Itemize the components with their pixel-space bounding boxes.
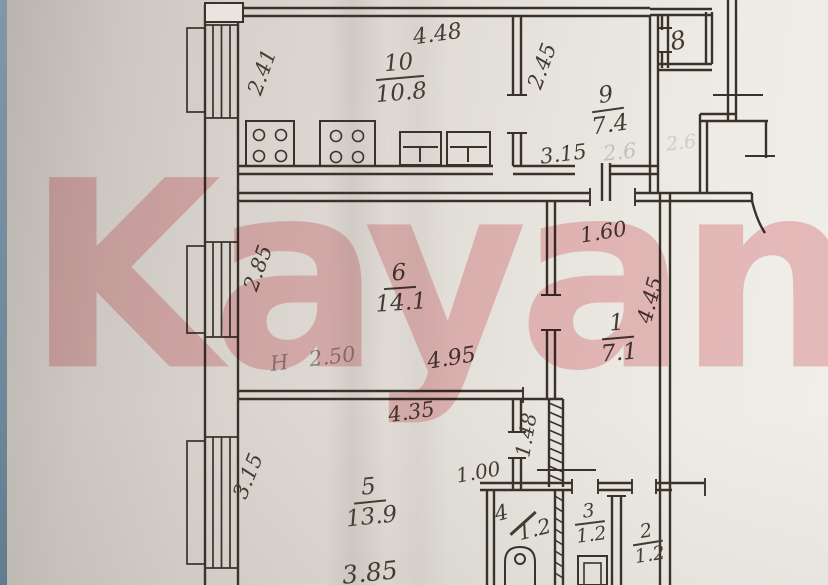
room-number: 6 xyxy=(382,260,416,290)
wall-junction-box xyxy=(205,3,243,22)
room-number: 5 xyxy=(351,473,386,504)
room-number: 9 xyxy=(588,81,624,113)
window-room6 xyxy=(187,242,238,337)
wall-hook xyxy=(752,193,765,233)
room-number: 10 xyxy=(374,49,424,81)
window-sill xyxy=(187,28,205,112)
room-3-label: 3 1.2 xyxy=(563,497,616,550)
room-area: 7.1 xyxy=(586,337,652,369)
scan-edge-strip xyxy=(0,0,7,585)
room-area: 1.2 xyxy=(515,514,553,545)
stove-icon xyxy=(320,121,375,166)
window-room10 xyxy=(187,25,238,118)
basin-icon xyxy=(578,556,607,585)
scanned-floorplan-page: 10 10.8 9 7.4 8 6 14.1 1 7.1 5 13.9 4 1.… xyxy=(0,0,828,585)
room-6-label: 6 14.1 xyxy=(356,257,444,319)
window-sill xyxy=(187,441,205,564)
window-sill xyxy=(187,246,205,333)
room-number: 4 xyxy=(492,500,511,527)
walls xyxy=(205,0,768,585)
sink-icon xyxy=(447,132,490,165)
room-9-label: 9 7.4 xyxy=(571,78,644,143)
faint-pencil-mark: 2.6 xyxy=(665,130,697,155)
room-number: 1 xyxy=(599,310,634,340)
room-10-label: 10 10.8 xyxy=(353,46,448,110)
sink-icon xyxy=(400,132,441,165)
room-5-label: 5 13.9 xyxy=(325,470,414,535)
faint-pencil-mark: 2.6 xyxy=(602,138,638,165)
dim-room5-bottom: 3.85 xyxy=(341,555,399,585)
stove-icon xyxy=(246,121,294,166)
room-2-label: 2 1.2 xyxy=(623,517,674,570)
